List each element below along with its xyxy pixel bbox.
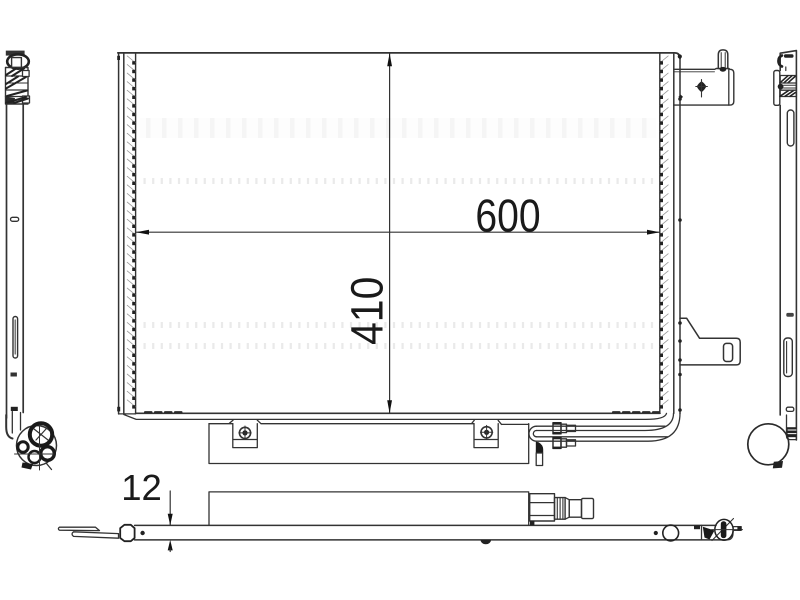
svg-text:600: 600 — [475, 191, 540, 243]
svg-text:410: 410 — [343, 277, 393, 345]
svg-text:12: 12 — [121, 467, 162, 508]
